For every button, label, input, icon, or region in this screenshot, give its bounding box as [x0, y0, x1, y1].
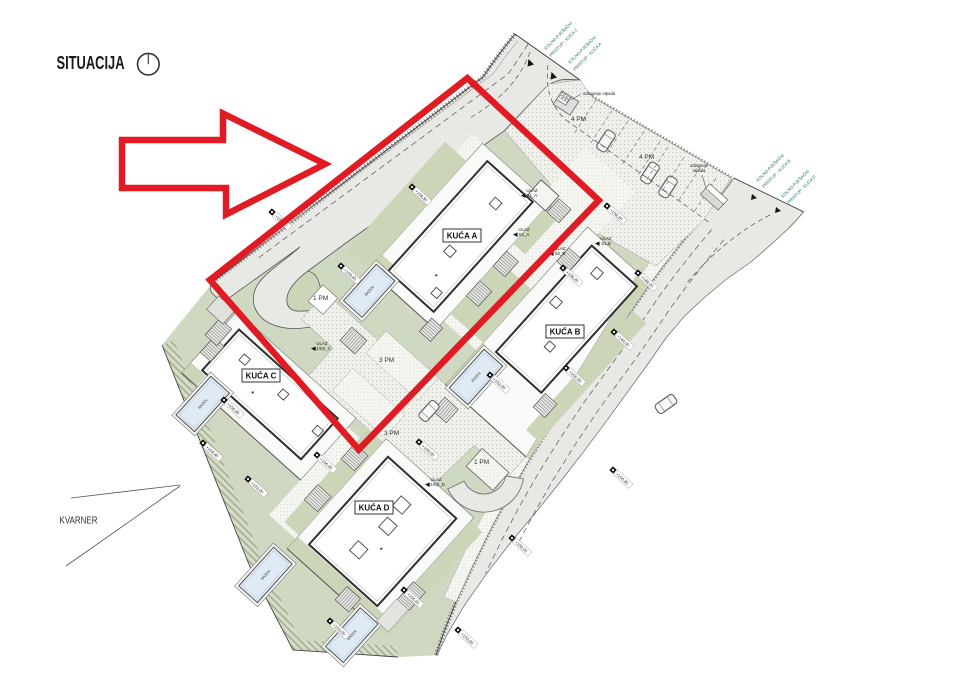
svg-text:S1/S2_C: S1/S2_C [313, 346, 331, 351]
svg-text:4 PM: 4 PM [639, 154, 654, 161]
svg-text:S2_A: S2_A [519, 232, 530, 237]
svg-text:KUĆA A: KUĆA A [447, 232, 478, 241]
svg-text:KVARNER: KVARNER [60, 515, 98, 527]
svg-text:S1_A: S1_A [527, 193, 538, 198]
svg-text:3 PM: 3 PM [384, 430, 399, 437]
svg-text:4 PM: 4 PM [571, 116, 586, 123]
svg-text:KUĆA C: KUĆA C [246, 372, 277, 381]
svg-text:1 PM: 1 PM [313, 295, 328, 302]
svg-text:1 PM: 1 PM [474, 459, 489, 466]
svg-text:S1/S2_D: S1/S2_D [427, 482, 445, 487]
svg-text:otpada: otpada [693, 168, 706, 173]
svg-text:KUĆA D: KUĆA D [359, 504, 390, 513]
svg-text:odlaganje otpada: odlaganje otpada [583, 91, 616, 96]
svg-text:S2_B: S2_B [555, 251, 566, 256]
svg-text:3 PM: 3 PM [379, 357, 394, 364]
svg-text:S1,B: S1,B [601, 241, 611, 246]
svg-text:KUĆA B: KUĆA B [550, 328, 581, 337]
svg-text:SITUACIJA: SITUACIJA [57, 52, 125, 73]
